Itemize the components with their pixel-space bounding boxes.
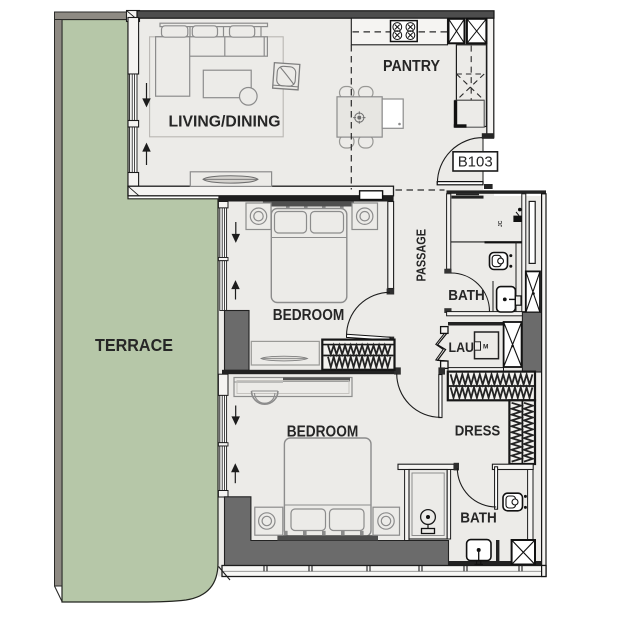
svg-text:LAU: LAU: [449, 339, 475, 355]
svg-text:BATH: BATH: [448, 288, 485, 304]
svg-text:B103: B103: [458, 154, 493, 171]
svg-text:LIVING/DINING: LIVING/DINING: [169, 114, 281, 131]
svg-text:PASSAGE: PASSAGE: [414, 229, 429, 282]
svg-text:JC: JC: [498, 220, 504, 227]
svg-text:PANTRY: PANTRY: [383, 58, 440, 75]
svg-text:M: M: [483, 344, 488, 351]
svg-text:TERRACE: TERRACE: [95, 335, 173, 355]
svg-text:BATH: BATH: [460, 510, 497, 526]
svg-text:DRESS: DRESS: [455, 422, 501, 439]
svg-text:BEDROOM: BEDROOM: [273, 307, 345, 324]
